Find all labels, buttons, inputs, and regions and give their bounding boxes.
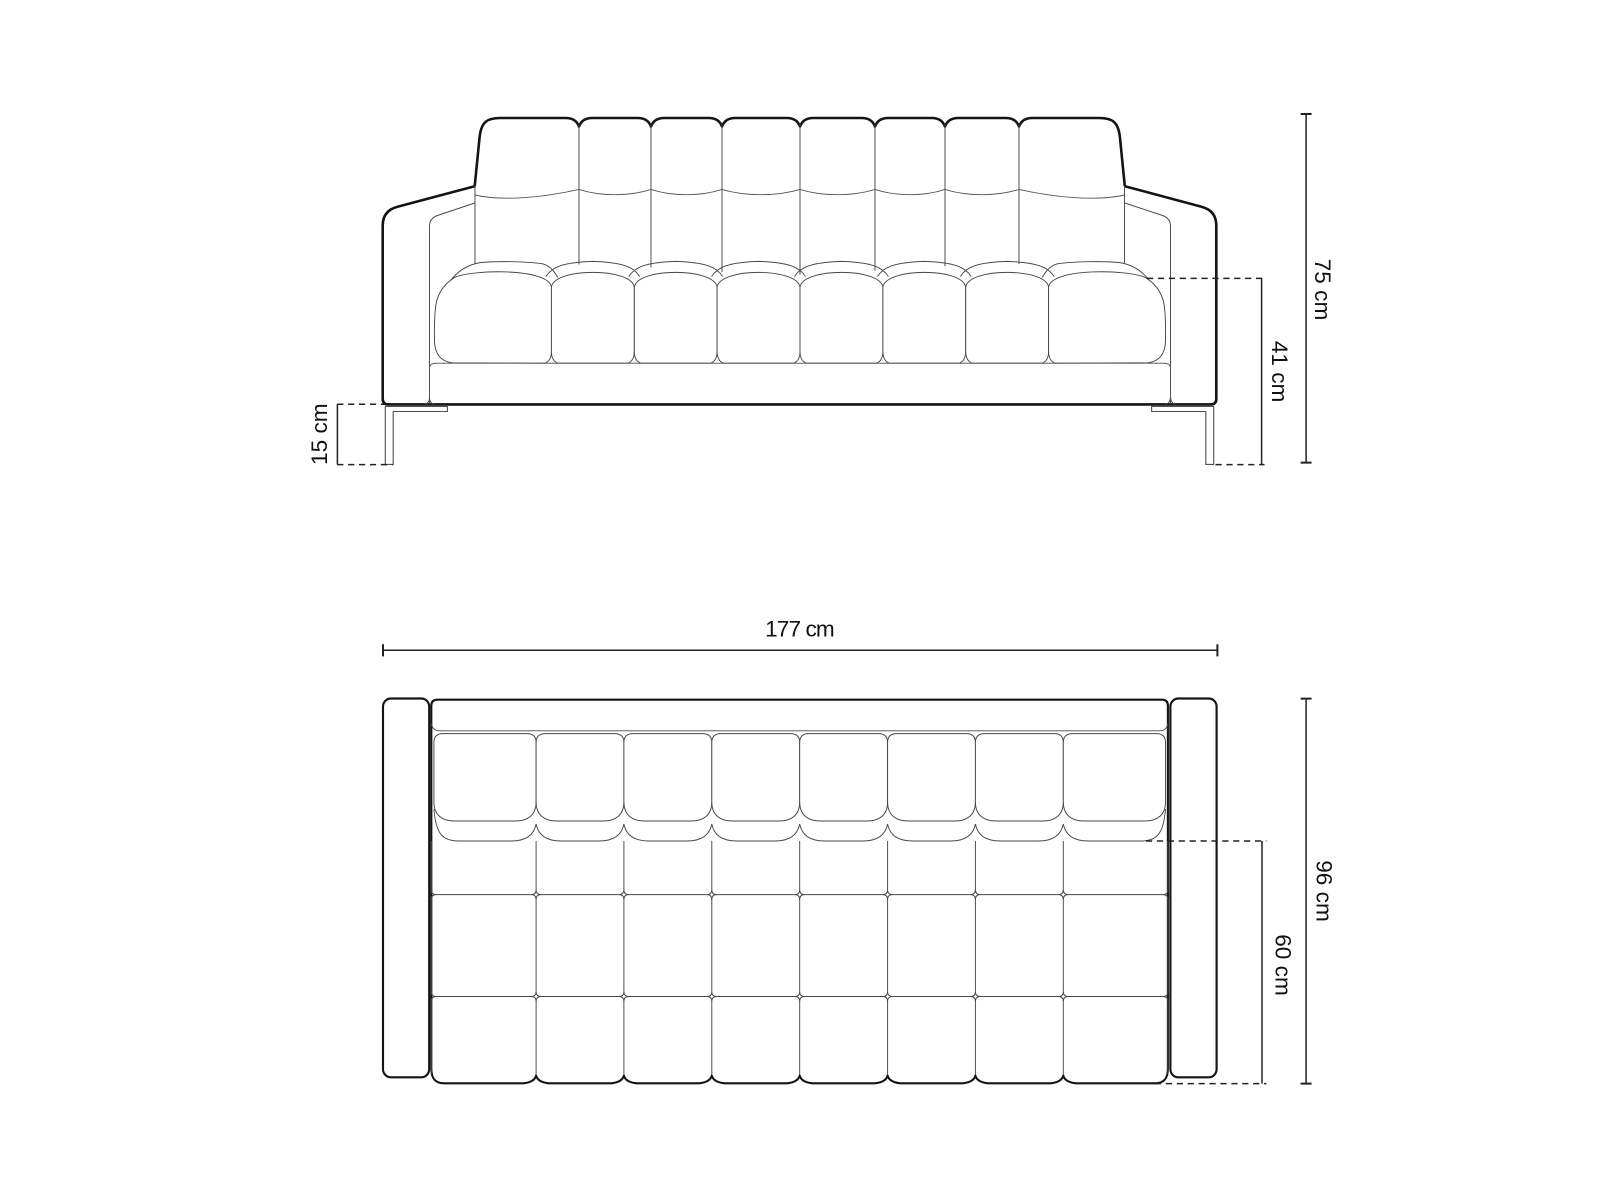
svg-text:60 cm: 60 cm [1271,934,1296,996]
svg-text:96 cm: 96 cm [1312,860,1337,922]
svg-text:75 cm: 75 cm [1310,259,1335,321]
svg-text:177 cm: 177 cm [765,616,834,641]
svg-text:41 cm: 41 cm [1267,341,1292,403]
svg-text:15 cm: 15 cm [307,403,332,465]
